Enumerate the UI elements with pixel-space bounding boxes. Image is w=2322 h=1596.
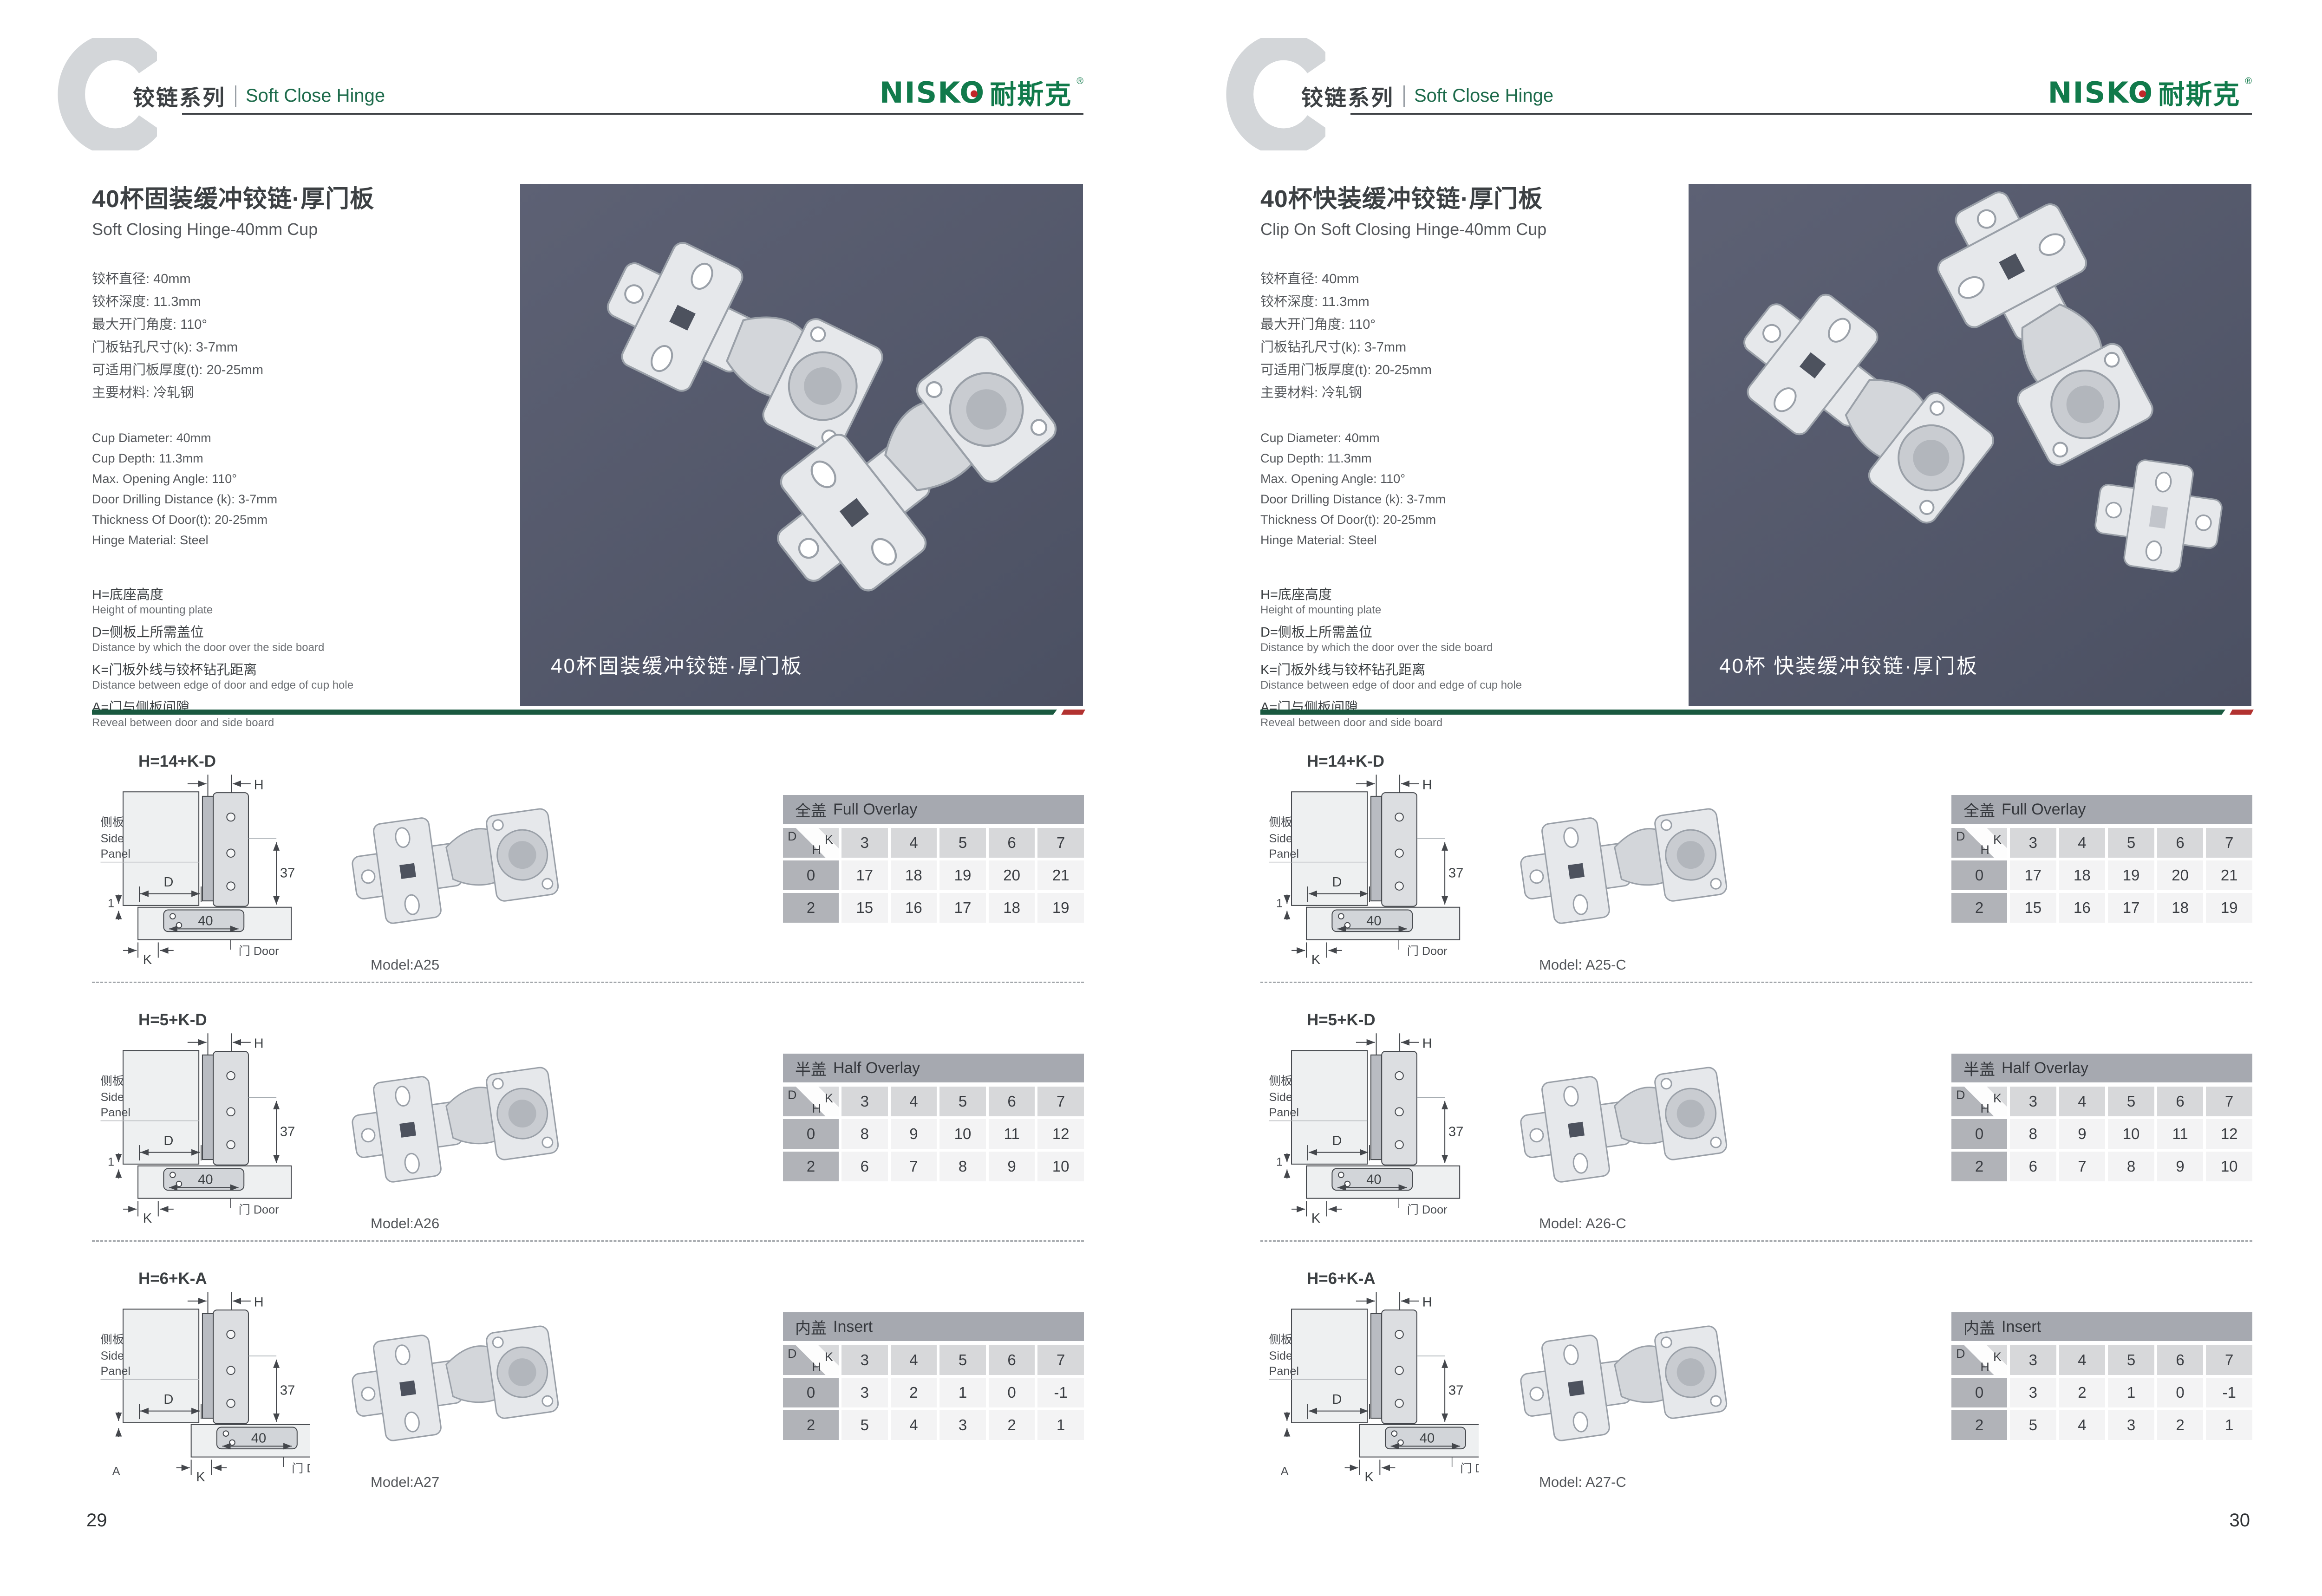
- corner-d: D: [1956, 1348, 1965, 1360]
- k-header-cell: 7: [2206, 1345, 2252, 1375]
- side-panel-label-en1: Side: [101, 1349, 124, 1362]
- product-thumbnail: [348, 1046, 566, 1194]
- header-rule: [1350, 113, 2252, 115]
- value-cell: 15: [841, 893, 888, 923]
- value-cell: 1: [2206, 1410, 2252, 1440]
- table-title-cn: 内盖: [795, 1316, 827, 1338]
- brand-logo: NISKO 耐斯克 ®: [880, 73, 1083, 111]
- dim-h-label: H: [254, 777, 264, 792]
- dim-k-label: K: [196, 1470, 205, 1482]
- dim-d-label: D: [163, 1133, 173, 1148]
- table-title-cn: 半盖: [795, 1057, 827, 1080]
- corner-d: D: [788, 830, 797, 843]
- dim-40-label: 40: [1366, 914, 1381, 929]
- value-cell: 7: [2059, 1152, 2106, 1181]
- hinge-photo-illustration: [520, 184, 1083, 705]
- product-row: H=5+K-D H 侧板 Side Panel D 1: [1260, 1007, 2252, 1233]
- value-cell: 12: [2206, 1119, 2252, 1149]
- dim-h-label: H: [1422, 777, 1432, 792]
- rule-green-bar: [1260, 710, 2225, 715]
- spec-line: 铰杯直径: 40mm: [92, 268, 510, 291]
- installation-diagram: H=6+K-A H 侧板 Side Panel D A: [1260, 1266, 1479, 1482]
- brand-cn: 耐斯克: [2158, 73, 2240, 111]
- spec-line: Cup Diameter: 40mm: [1260, 428, 1678, 448]
- rule-green-bar: [92, 710, 1057, 715]
- hinge-photo-illustration: [1689, 184, 2251, 705]
- series-separator: [235, 85, 236, 107]
- definition-item: A=门与侧板间隙Reveal between door and side boa…: [1260, 699, 1678, 730]
- k-header-cell: 7: [2206, 1087, 2252, 1116]
- spec-line: Hinge Material: Steel: [1260, 530, 1678, 550]
- catalog-page-30: 铰链系列 Soft Close Hinge NISKO 耐斯克 ® 40杯快装缓…: [1168, 0, 2322, 1596]
- value-cell: 18: [2059, 860, 2106, 890]
- side-panel-label-cn: 侧板: [1269, 1075, 1292, 1088]
- product-thumbnail: [348, 787, 566, 936]
- table-title: 内盖 Insert: [783, 1312, 1084, 1341]
- value-cell: 9: [891, 1119, 937, 1149]
- value-cell: 19: [1037, 893, 1084, 923]
- dim-k-label: K: [143, 1211, 152, 1224]
- model-label: Model: A27-C: [1539, 1474, 1626, 1491]
- definition-term: D=侧板上所需盖位: [1260, 624, 1678, 641]
- spec-line: 铰杯深度: 11.3mm: [92, 291, 510, 313]
- side-panel-label-en2: Panel: [101, 847, 131, 860]
- page-number: 30: [2230, 1510, 2250, 1531]
- k-header-cell: 5: [2108, 1345, 2154, 1375]
- h-row-header: 2: [783, 1410, 839, 1440]
- overlay-table: 内盖 Insert D K H 3456703210-1254321: [783, 1312, 1084, 1492]
- k-header-cell: 4: [2059, 1087, 2106, 1116]
- table-title: 半盖 Half Overlay: [783, 1054, 1084, 1082]
- definition-desc: Height of mounting plate: [1260, 603, 1678, 617]
- definition-desc: Reveal between door and side board: [92, 716, 510, 730]
- catalog-page-29: 铰链系列 Soft Close Hinge NISKO 耐斯克 ® 40杯固装缓…: [0, 0, 1168, 1596]
- spec-line: Cup Depth: 11.3mm: [92, 448, 510, 469]
- k-header-cell: 5: [939, 828, 986, 858]
- value-cell: 2: [989, 1410, 1035, 1440]
- k-header-cell: 6: [989, 1345, 1035, 1375]
- value-cell: 0: [2157, 1378, 2204, 1407]
- spec-line: 铰杯直径: 40mm: [1260, 268, 1678, 291]
- value-cell: 4: [2059, 1410, 2106, 1440]
- table-corner-cell: D K H: [1951, 828, 2007, 858]
- spec-line: 铰杯深度: 11.3mm: [1260, 291, 1678, 313]
- spec-line: Cup Depth: 11.3mm: [1260, 448, 1678, 469]
- specs-cn: 铰杯直径: 40mm铰杯深度: 11.3mm最大开门角度: 110°门板钻孔尺寸…: [1260, 268, 1678, 404]
- dim-k-label: K: [1311, 1211, 1321, 1224]
- photo-caption: 40杯固装缓冲铰链·厚门板: [551, 649, 803, 679]
- series-header: 铰链系列 Soft Close Hinge: [133, 80, 385, 112]
- dim-k-label: K: [143, 952, 152, 965]
- installation-diagram: H=14+K-D H 侧板 Side Panel D 1: [1260, 749, 1479, 965]
- series-header: 铰链系列 Soft Close Hinge: [1301, 80, 1553, 112]
- corner-k: K: [1993, 834, 2002, 846]
- h-row-header: 0: [1951, 1378, 2007, 1407]
- product-rows: H=14+K-D H 侧板 Side Panel D 1: [1260, 749, 2252, 1492]
- side-panel-shape: [1291, 1050, 1367, 1164]
- dim-h-label: H: [254, 1295, 264, 1309]
- height-formula: H=5+K-D: [1307, 1011, 1376, 1029]
- corner-h: H: [1980, 1361, 1989, 1374]
- specs-cn: 铰杯直径: 40mm铰杯深度: 11.3mm最大开门角度: 110°门板钻孔尺寸…: [92, 268, 510, 404]
- table-title-cn: 全盖: [1963, 798, 1995, 821]
- spec-line: Door Drilling Distance (k): 3-7mm: [1260, 489, 1678, 509]
- brand-latin: NISKO: [880, 76, 985, 110]
- side-panel-label-cn: 侧板: [101, 816, 124, 829]
- model-label: Model:A26: [371, 1215, 439, 1232]
- side-panel-label-en1: Side: [1269, 1349, 1293, 1362]
- installation-diagram: H=6+K-A H 侧板 Side Panel D A: [92, 1266, 310, 1482]
- table-corner-cell: D K H: [783, 1345, 839, 1375]
- product-row: H=14+K-D H 侧板 Side Panel D 1: [1260, 749, 2252, 974]
- table-title-en: Full Overlay: [2002, 801, 2086, 819]
- value-cell: 8: [2108, 1152, 2154, 1181]
- value-cell: 6: [2010, 1152, 2056, 1181]
- height-formula: H=14+K-D: [1307, 752, 1384, 770]
- dimension-definitions: H=底座高度Height of mounting plateD=侧板上所需盖位D…: [1260, 586, 1678, 730]
- value-cell: 5: [841, 1410, 888, 1440]
- series-title-cn: 铰链系列: [133, 80, 226, 112]
- brand-logo: NISKO 耐斯克 ®: [2048, 73, 2252, 111]
- table-grid: D K H 3456703210-1254321: [783, 1345, 1084, 1440]
- spec-line: Thickness Of Door(t): 20-25mm: [1260, 509, 1678, 530]
- side-panel-label-cn: 侧板: [101, 1075, 124, 1088]
- photo-caption: 40杯 快装缓冲铰链·厚门板: [1719, 649, 1978, 679]
- k-header-cell: 3: [841, 1087, 888, 1116]
- door-label: 门 Door: [1407, 945, 1448, 958]
- value-cell: 21: [2206, 860, 2252, 890]
- model-label: Model:A27: [371, 1474, 439, 1491]
- definition-term: K=门板外线与铰杯钻孔距离: [1260, 662, 1678, 678]
- table-corner-cell: D K H: [1951, 1345, 2007, 1375]
- table-title-cn: 半盖: [1963, 1057, 1995, 1080]
- spec-line: 门板钻孔尺寸(k): 3-7mm: [1260, 336, 1678, 359]
- side-panel-shape: [123, 1050, 199, 1164]
- dim-k-label: K: [1311, 952, 1321, 965]
- spec-line: Max. Opening Angle: 110°: [1260, 469, 1678, 489]
- h-row-header: 0: [783, 860, 839, 890]
- value-cell: 2: [2059, 1378, 2106, 1407]
- corner-k: K: [1993, 1351, 2002, 1363]
- spec-line: Cup Diameter: 40mm: [92, 428, 510, 448]
- table-corner-cell: D K H: [783, 828, 839, 858]
- dim-d-label: D: [1332, 1133, 1342, 1148]
- dim-d-label: D: [1332, 1392, 1342, 1407]
- table-title-en: Half Overlay: [833, 1059, 920, 1077]
- corner-h: H: [812, 1361, 821, 1374]
- k-header-cell: 3: [841, 828, 888, 858]
- value-cell: 1: [939, 1378, 986, 1407]
- dim-40-label: 40: [1366, 1173, 1381, 1187]
- section-rule: [92, 710, 1084, 715]
- product-thumbnail: [1516, 787, 1735, 936]
- dim-small-label: 1: [1276, 1156, 1283, 1169]
- h-row-header: 2: [1951, 1410, 2007, 1440]
- value-cell: 16: [2059, 893, 2106, 923]
- k-header-cell: 4: [891, 1345, 937, 1375]
- h-row-header: 2: [1951, 893, 2007, 923]
- product-photo: 40杯固装缓冲铰链·厚门板: [520, 184, 1083, 706]
- value-cell: 17: [841, 860, 888, 890]
- dashed-divider: [92, 982, 1084, 983]
- k-header-cell: 4: [2059, 828, 2106, 858]
- dim-h-label: H: [254, 1036, 264, 1051]
- table-title-en: Insert: [833, 1318, 873, 1336]
- definition-item: H=底座高度Height of mounting plate: [1260, 586, 1678, 617]
- overlay-table: 半盖 Half Overlay D K H 345670891011122678…: [783, 1054, 1084, 1233]
- definition-term: D=侧板上所需盖位: [92, 624, 510, 641]
- series-title-en: Soft Close Hinge: [1414, 85, 1553, 106]
- dashed-divider: [1260, 982, 2252, 983]
- corner-h: H: [812, 1102, 821, 1115]
- dim-37-label: 37: [1448, 866, 1463, 881]
- product-row: H=6+K-A H 侧板 Side Panel D A: [1260, 1266, 2252, 1492]
- height-formula: H=5+K-D: [138, 1011, 207, 1029]
- spec-line: 可适用门板厚度(t): 20-25mm: [92, 359, 510, 382]
- table-grid: D K H 345670171819202121516171819: [1951, 828, 2252, 923]
- side-panel-label-en2: Panel: [1269, 1365, 1299, 1378]
- k-header-cell: 7: [1037, 1087, 1084, 1116]
- value-cell: 2: [2157, 1410, 2204, 1440]
- side-panel-label-cn: 侧板: [101, 1333, 124, 1346]
- dim-40-label: 40: [198, 1173, 213, 1187]
- k-header-cell: 6: [989, 1087, 1035, 1116]
- side-panel-label-cn: 侧板: [1269, 1333, 1292, 1346]
- definition-desc: Distance by which the door over the side…: [92, 641, 510, 655]
- table-title-cn: 内盖: [1963, 1316, 1995, 1338]
- door-label: 门 Door: [239, 945, 279, 958]
- k-header-cell: 6: [2157, 828, 2204, 858]
- model-label: Model: A26-C: [1539, 1215, 1626, 1232]
- dim-37-label: 37: [280, 866, 295, 881]
- brand-latin: NISKO: [2048, 76, 2154, 110]
- series-title-en: Soft Close Hinge: [246, 85, 385, 106]
- installation-diagram: H=5+K-D H 侧板 Side Panel D 1: [92, 1007, 310, 1224]
- value-cell: -1: [2206, 1378, 2252, 1407]
- dim-h-label: H: [1422, 1295, 1432, 1309]
- dim-h-label: H: [1422, 1036, 1432, 1051]
- table-title: 半盖 Half Overlay: [1951, 1054, 2252, 1082]
- installation-diagram: H=14+K-D H 侧板 Side Panel D 1: [92, 749, 310, 965]
- definition-desc: Distance between edge of door and edge o…: [1260, 678, 1678, 692]
- value-cell: 10: [2108, 1119, 2154, 1149]
- dim-40-label: 40: [198, 914, 213, 929]
- overlay-table: 内盖 Insert D K H 3456703210-1254321: [1951, 1312, 2252, 1492]
- value-cell: 1: [2108, 1378, 2154, 1407]
- series-title-cn: 铰链系列: [1301, 80, 1394, 112]
- table-title-en: Half Overlay: [2002, 1059, 2088, 1077]
- side-panel-shape: [123, 1309, 199, 1423]
- corner-d: D: [788, 1089, 797, 1101]
- value-cell: 11: [2157, 1119, 2204, 1149]
- definition-item: K=门板外线与铰杯钻孔距离Distance between edge of do…: [92, 662, 510, 692]
- definition-term: K=门板外线与铰杯钻孔距离: [92, 662, 510, 678]
- spec-line: 主要材料: 冷轧钢: [92, 382, 510, 404]
- spec-line: Max. Opening Angle: 110°: [92, 469, 510, 489]
- value-cell: 11: [989, 1119, 1035, 1149]
- value-cell: 15: [2010, 893, 2056, 923]
- spec-line: Door Drilling Distance (k): 3-7mm: [92, 489, 510, 509]
- height-formula: H=6+K-A: [1307, 1270, 1376, 1288]
- header-rule: [182, 113, 1083, 115]
- dim-small-label: A: [1281, 1465, 1289, 1478]
- h-row-header: 0: [1951, 860, 2007, 890]
- value-cell: 3: [841, 1378, 888, 1407]
- table-corner-cell: D K H: [1951, 1087, 2007, 1116]
- dim-small-label: 1: [1276, 897, 1283, 910]
- k-header-cell: 5: [939, 1087, 986, 1116]
- side-panel-label-en2: Panel: [1269, 847, 1299, 860]
- k-header-cell: 6: [989, 828, 1035, 858]
- h-row-header: 2: [783, 1152, 839, 1181]
- product-row: H=14+K-D H 侧板 Side Panel D 1: [92, 749, 1084, 974]
- dim-37-label: 37: [280, 1383, 295, 1398]
- k-header-cell: 5: [2108, 1087, 2154, 1116]
- side-panel-shape: [123, 792, 199, 905]
- corner-d: D: [1956, 1089, 1965, 1101]
- brand-cn: 耐斯克: [990, 73, 1072, 111]
- spec-line: Thickness Of Door(t): 20-25mm: [92, 509, 510, 530]
- product-title-en: Clip On Soft Closing Hinge-40mm Cup: [1260, 220, 1678, 239]
- value-cell: 17: [2108, 893, 2154, 923]
- value-cell: 9: [2157, 1152, 2204, 1181]
- value-cell: 18: [2157, 893, 2204, 923]
- value-cell: 18: [989, 893, 1035, 923]
- rule-red-accent: [1061, 710, 1085, 715]
- definition-item: D=侧板上所需盖位Distance by which the door over…: [92, 624, 510, 655]
- h-row-header: 2: [1951, 1152, 2007, 1181]
- table-title: 内盖 Insert: [1951, 1312, 2252, 1341]
- section-rule: [1260, 710, 2252, 715]
- dim-small-label: 1: [108, 897, 114, 910]
- value-cell: 3: [939, 1410, 986, 1440]
- k-header-cell: 4: [891, 1087, 937, 1116]
- k-header-cell: 6: [2157, 1087, 2204, 1116]
- table-grid: D K H 345670891011122678910: [783, 1087, 1084, 1181]
- height-formula: H=6+K-A: [138, 1270, 207, 1288]
- corner-d: D: [788, 1348, 797, 1360]
- product-row: H=6+K-A H 侧板 Side Panel D A: [92, 1266, 1084, 1492]
- k-header-cell: 3: [2010, 828, 2056, 858]
- spec-line: Hinge Material: Steel: [92, 530, 510, 550]
- corner-h: H: [1980, 1102, 1989, 1115]
- value-cell: 21: [1037, 860, 1084, 890]
- k-header-cell: 7: [1037, 828, 1084, 858]
- k-header-cell: 4: [891, 828, 937, 858]
- k-header-cell: 4: [2059, 1345, 2106, 1375]
- definition-desc: Distance between edge of door and edge o…: [92, 678, 510, 692]
- definition-item: H=底座高度Height of mounting plate: [92, 586, 510, 617]
- value-cell: 7: [891, 1152, 937, 1181]
- model-label: Model:A25: [371, 957, 439, 973]
- corner-h: H: [1980, 844, 1989, 856]
- spec-line: 可适用门板厚度(t): 20-25mm: [1260, 359, 1678, 382]
- h-row-header: 0: [783, 1378, 839, 1407]
- value-cell: 10: [939, 1119, 986, 1149]
- corner-h: H: [812, 844, 821, 856]
- value-cell: 17: [2010, 860, 2056, 890]
- side-panel-label-en2: Panel: [101, 1106, 131, 1119]
- installation-diagram: H=5+K-D H 侧板 Side Panel D 1: [1260, 1007, 1479, 1224]
- h-row-header: 2: [783, 893, 839, 923]
- definition-desc: Distance by which the door over the side…: [1260, 641, 1678, 655]
- table-corner-cell: D K H: [783, 1087, 839, 1116]
- value-cell: -1: [1037, 1378, 1084, 1407]
- definition-item: A=门与侧板间隙Reveal between door and side boa…: [92, 699, 510, 730]
- registered-mark: ®: [1076, 76, 1083, 87]
- value-cell: 8: [2010, 1119, 2056, 1149]
- dim-d-label: D: [163, 1392, 173, 1407]
- product-intro: 40杯快装缓冲铰链·厚门板 Clip On Soft Closing Hinge…: [1260, 179, 1678, 737]
- definition-item: D=侧板上所需盖位Distance by which the door over…: [1260, 624, 1678, 655]
- definition-term: H=底座高度: [1260, 586, 1678, 603]
- definition-item: K=门板外线与铰杯钻孔距离Distance between edge of do…: [1260, 662, 1678, 692]
- value-cell: 0: [989, 1378, 1035, 1407]
- definition-desc: Reveal between door and side board: [1260, 716, 1678, 730]
- door-label: 门 Door: [1407, 1204, 1448, 1217]
- value-cell: 19: [939, 860, 986, 890]
- rule-red-accent: [2230, 710, 2254, 715]
- registered-mark: ®: [2245, 76, 2252, 87]
- k-header-cell: 7: [1037, 1345, 1084, 1375]
- dim-40-label: 40: [251, 1431, 266, 1446]
- value-cell: 3: [2010, 1378, 2056, 1407]
- product-photo: 40杯 快装缓冲铰链·厚门板: [1689, 184, 2251, 706]
- side-panel-label-en1: Side: [101, 1091, 124, 1104]
- side-panel-label-en1: Side: [1269, 1091, 1293, 1104]
- table-grid: D K H 3456703210-1254321: [1951, 1345, 2252, 1440]
- corner-k: K: [825, 1351, 833, 1363]
- product-thumbnail: [1516, 1046, 1735, 1194]
- dashed-divider: [92, 1240, 1084, 1242]
- value-cell: 16: [891, 893, 937, 923]
- value-cell: 8: [841, 1119, 888, 1149]
- dim-k-label: K: [1364, 1470, 1374, 1482]
- product-thumbnail: [1516, 1304, 1735, 1453]
- overlay-table: 全盖 Full Overlay D K H 345670171819202121…: [1951, 795, 2252, 974]
- dim-d-label: D: [163, 875, 173, 890]
- value-cell: 18: [891, 860, 937, 890]
- k-header-cell: 5: [939, 1345, 986, 1375]
- definition-term: H=底座高度: [92, 586, 510, 603]
- spec-line: 主要材料: 冷轧钢: [1260, 382, 1678, 404]
- product-title-cn: 40杯快装缓冲铰链·厚门板: [1260, 179, 1678, 214]
- value-cell: 19: [2108, 860, 2154, 890]
- table-grid: D K H 345670171819202121516171819: [783, 828, 1084, 923]
- value-cell: 5: [2010, 1410, 2056, 1440]
- corner-d: D: [1956, 830, 1965, 843]
- specs-en: Cup Diameter: 40mmCup Depth: 11.3mmMax. …: [1260, 428, 1678, 550]
- product-intro: 40杯固装缓冲铰链·厚门板 Soft Closing Hinge-40mm Cu…: [92, 179, 510, 737]
- product-thumbnail: [348, 1304, 566, 1453]
- product-title-en: Soft Closing Hinge-40mm Cup: [92, 220, 510, 239]
- dim-37-label: 37: [1448, 1383, 1463, 1398]
- corner-k: K: [1993, 1092, 2002, 1105]
- corner-k: K: [825, 834, 833, 846]
- k-header-cell: 3: [841, 1345, 888, 1375]
- spec-line: 门板钻孔尺寸(k): 3-7mm: [92, 336, 510, 359]
- page-number: 29: [86, 1510, 107, 1531]
- dim-40-label: 40: [1420, 1431, 1435, 1446]
- dim-small-label: A: [112, 1465, 120, 1478]
- value-cell: 19: [2206, 893, 2252, 923]
- k-header-cell: 3: [2010, 1087, 2056, 1116]
- value-cell: 17: [939, 893, 986, 923]
- value-cell: 1: [1037, 1410, 1084, 1440]
- spec-line: 最大开门角度: 110°: [92, 313, 510, 336]
- corner-k: K: [825, 1092, 833, 1105]
- value-cell: 9: [2059, 1119, 2106, 1149]
